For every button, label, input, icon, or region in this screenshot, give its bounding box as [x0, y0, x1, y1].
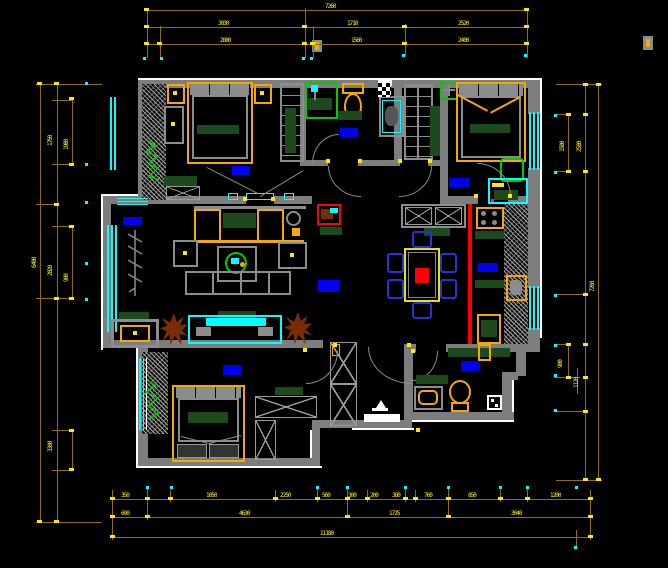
cyan-dot — [85, 163, 88, 166]
closet-clothes — [430, 106, 440, 156]
dim-line — [72, 226, 73, 298]
dim-text: 690 — [121, 511, 129, 517]
dim-text: 900 — [558, 360, 564, 368]
entry-bench-cushion — [164, 176, 197, 186]
bed1-blanket — [197, 125, 239, 134]
bed3-blanket — [188, 412, 228, 423]
cyan-dot — [526, 486, 529, 489]
cyan-dot — [554, 171, 557, 174]
outline-bedroom3-bottom — [138, 466, 322, 468]
wall-right-kitchen-lower — [528, 328, 540, 344]
sofa-seat-cushion — [223, 213, 256, 228]
bedroom1-door-panel — [284, 193, 294, 200]
dim-line — [112, 499, 590, 500]
cyan-dot — [554, 294, 557, 297]
cad-canvas[interactable]: 7260 3030 1710 2520 2880 1560 2400 350 1… — [0, 0, 668, 568]
bath1-mat — [338, 111, 362, 120]
dim-line — [568, 344, 569, 378]
bath2-sink — [418, 390, 438, 405]
wardrobe-shelf — [275, 387, 303, 395]
hinge-dot — [271, 197, 275, 201]
dim-tick — [302, 42, 307, 45]
dim-extension — [415, 490, 416, 502]
dim-tick — [566, 376, 571, 379]
fan-blade — [448, 84, 450, 96]
room-label-kitchen — [478, 263, 498, 272]
balcony-top-window — [117, 204, 148, 205]
hinge-dot — [428, 159, 432, 163]
dim-extension — [576, 530, 577, 546]
burner — [492, 211, 497, 216]
dim-text: 1500 — [560, 142, 566, 152]
dim-tick — [110, 515, 115, 518]
bay-window-line — [111, 225, 113, 332]
wardrobe-bedroom3-top — [255, 396, 317, 418]
dim-extension — [305, 8, 306, 58]
highlighted-wall-red — [468, 204, 472, 344]
tv-speaker — [196, 327, 211, 336]
burner — [492, 220, 497, 225]
bed1-headboard — [190, 84, 250, 95]
dim-extension — [405, 24, 406, 56]
dim-text: 1200 — [550, 493, 560, 499]
hinge-dot — [411, 349, 415, 353]
dim-tick — [525, 497, 530, 500]
cyan-dot — [302, 57, 305, 60]
dim-tick — [524, 25, 529, 28]
cyan-dot — [170, 486, 173, 489]
dim-extension — [275, 490, 276, 502]
dim-tick — [588, 515, 593, 518]
cyan-dot — [574, 546, 577, 549]
dim-text: 900 — [64, 274, 70, 282]
dim-tick — [157, 42, 162, 45]
dim-text: 6400 — [32, 258, 38, 268]
hinge-dot — [326, 159, 330, 163]
dim-line — [57, 84, 58, 522]
dim-tick — [302, 25, 307, 28]
dim-text: 4630 — [239, 511, 249, 517]
balcony-top-window — [117, 198, 148, 199]
dim-text: 300 — [348, 493, 356, 499]
dim-tick — [583, 83, 588, 86]
dim-tick — [583, 478, 588, 481]
basin-sink — [385, 106, 398, 126]
dim-tick — [524, 8, 529, 11]
burner — [481, 211, 486, 216]
dim-stub — [36, 84, 102, 85]
dim-tick — [144, 8, 149, 11]
cyan-dot — [310, 57, 313, 60]
balcony-top-window — [117, 201, 148, 202]
dim-text: 2580 — [577, 142, 583, 152]
dining-chair — [412, 302, 432, 319]
dim-text: 11180 — [320, 531, 333, 537]
dim-tick — [446, 497, 451, 500]
bedroom1-door-panel — [228, 193, 238, 200]
cyan-dot — [146, 486, 149, 489]
dim-text: 2020 — [48, 266, 54, 276]
dim-tick — [596, 478, 601, 481]
washing-machine-knob — [133, 331, 137, 335]
dining-chair — [412, 231, 432, 248]
dim-tick — [588, 497, 593, 500]
dim-tick — [145, 515, 150, 518]
cyan-dot — [524, 54, 527, 57]
door-swing-line — [260, 170, 303, 197]
axis-marker-flag — [646, 39, 650, 47]
dim-text: 7260 — [590, 282, 596, 292]
dim-stub — [36, 522, 102, 523]
bedroom3-window — [139, 358, 141, 430]
entry-label-block — [364, 414, 400, 422]
tv-screen — [206, 318, 266, 326]
dim-tick — [37, 520, 42, 523]
wall-right-top — [528, 80, 540, 114]
dim-tick — [583, 170, 588, 173]
dim-tick — [69, 97, 74, 100]
dim-tick — [144, 25, 149, 28]
room-label-bedroom1 — [232, 166, 250, 175]
plant-icon — [143, 138, 165, 182]
outline-corridor-bottom — [352, 428, 414, 430]
dim-extension — [448, 488, 449, 518]
hinge-dot — [416, 428, 420, 432]
dim-stub — [52, 100, 72, 101]
dim-tick — [69, 163, 74, 166]
wall-corridor-b — [358, 160, 400, 166]
kitchen-window — [537, 286, 539, 330]
dim-tick — [583, 343, 588, 346]
bay-window-line — [107, 225, 109, 332]
dining-chair — [387, 279, 404, 299]
entry-cabinet-decor2 — [330, 208, 338, 213]
bed2-headboard — [459, 84, 523, 96]
sectional-divider — [212, 271, 214, 295]
cyan-dot — [85, 82, 88, 85]
dim-text: 7260 — [325, 4, 335, 10]
cyan-dot — [499, 486, 502, 489]
dim-tick — [54, 520, 59, 523]
dim-tick — [54, 203, 59, 206]
dim-tick — [54, 82, 59, 85]
closet-divider — [417, 84, 419, 160]
toilet2-tank — [451, 402, 469, 412]
corridor-door-arc — [368, 347, 412, 384]
dim-tick — [402, 25, 407, 28]
dim-text: 3030 — [218, 21, 228, 27]
dim-text: 1760 — [48, 136, 54, 146]
dim-tick — [69, 297, 74, 300]
wall-step-vertical — [312, 422, 320, 466]
cyan-dot — [85, 298, 88, 301]
lamp-icon — [260, 91, 264, 95]
dim-tick — [583, 376, 588, 379]
entry-marker-bar — [372, 408, 388, 411]
dim-text: 200 — [370, 493, 378, 499]
hinge-dot — [358, 159, 362, 163]
hinge-dot — [333, 343, 337, 347]
dim-tick — [54, 297, 59, 300]
tv-speaker — [258, 327, 273, 336]
bedroom1-outer-window — [114, 97, 116, 170]
dim-text: 1710 — [347, 21, 357, 27]
floor-drain-dot — [495, 404, 498, 407]
dim-text: 1120 — [574, 378, 580, 388]
dim-text: 3040 — [511, 511, 521, 517]
bedroom2-window — [537, 112, 539, 170]
hinge-dot — [398, 159, 402, 163]
dim-tick — [69, 429, 74, 432]
sofa-armchair-right — [257, 209, 284, 242]
washer-stand — [378, 83, 391, 97]
hinge-dot — [508, 194, 512, 198]
dim-text: 1980 — [64, 140, 70, 150]
dim-extension — [527, 8, 528, 58]
room-label-living — [318, 280, 340, 292]
wall-bedroom2-bottom-a — [440, 196, 478, 204]
entry-marker-icon — [376, 400, 386, 408]
cyan-dot — [346, 486, 349, 489]
dining-centerpiece — [415, 268, 429, 283]
dim-line — [147, 27, 527, 28]
kitchen-window — [529, 286, 531, 330]
dim-tick — [345, 515, 350, 518]
dresser-knob — [171, 122, 175, 126]
kitchen-counter — [475, 280, 504, 288]
lamp-icon — [173, 91, 177, 95]
stove — [476, 207, 504, 229]
cyan-dot — [143, 57, 146, 60]
dim-text: 3300 — [48, 442, 54, 452]
dim-text: 2400 — [458, 38, 468, 44]
floor-drain — [487, 395, 502, 410]
dim-tick — [566, 343, 571, 346]
kitchen-window — [533, 286, 535, 330]
hatch-wall-kitchen — [504, 204, 528, 344]
hinge-dot — [243, 197, 247, 201]
cyan-dot — [316, 486, 319, 489]
cyan-dot — [554, 114, 557, 117]
dim-line — [112, 537, 590, 538]
entry-bench-cabinet — [166, 186, 200, 200]
cyan-dot — [554, 374, 557, 377]
kitchen-counter — [475, 231, 504, 239]
coffee-table-flower — [240, 262, 245, 267]
sectional-divider — [268, 271, 270, 295]
dim-tick — [413, 497, 418, 500]
room-label-bedroom3 — [223, 365, 241, 375]
side-table-lamp — [183, 251, 187, 255]
ceiling-light-icon — [286, 211, 301, 226]
cabinet-panel — [405, 207, 432, 225]
floor-drain-dot — [491, 399, 494, 402]
coffee-table-plant-leaf — [231, 258, 239, 264]
bed2-blanket — [470, 124, 510, 133]
corridor-door-arc — [399, 166, 432, 197]
dim-tick — [69, 225, 74, 228]
side-table-lamp — [290, 253, 294, 257]
tree-icon — [126, 230, 144, 296]
dining-chair — [440, 253, 457, 273]
dining-chair — [440, 279, 457, 299]
dim-text: 2880 — [220, 38, 230, 44]
dim-tick — [583, 113, 588, 116]
wardrobe-clothes — [285, 108, 296, 153]
cyan-dot — [575, 486, 578, 489]
plant-icon — [142, 378, 168, 424]
dim-line — [147, 44, 527, 45]
dim-tick — [583, 410, 588, 413]
dim-extension — [367, 490, 368, 502]
dim-line — [72, 98, 73, 166]
dim-tick — [110, 535, 115, 538]
dim-line — [40, 84, 41, 522]
sectional-sofa — [185, 271, 291, 295]
dim-tick — [168, 497, 173, 500]
dim-text: 2520 — [458, 21, 468, 27]
dim-extension — [500, 490, 501, 502]
bed3-headboard — [176, 387, 241, 398]
bed3-drawer — [209, 444, 239, 458]
dim-extension — [170, 490, 171, 502]
cyan-dot — [85, 262, 88, 265]
desk-dot — [491, 199, 494, 202]
dim-tick — [145, 497, 150, 500]
dim-tick — [524, 42, 529, 45]
dim-text: 380 — [392, 493, 400, 499]
dim-tick — [315, 497, 320, 500]
sofa-armchair-left — [194, 209, 221, 242]
shower-shelf — [308, 98, 332, 110]
sink-basin — [510, 280, 522, 295]
dim-text: 1725 — [389, 511, 399, 517]
wardrobe-bedroom3-side — [255, 420, 276, 460]
dim-text: 1050 — [206, 493, 216, 499]
dim-text: 760 — [424, 493, 432, 499]
dim-line — [568, 114, 569, 172]
shower-stem — [314, 92, 316, 100]
cyan-dot — [85, 201, 88, 204]
toilet2-bowl — [449, 380, 471, 404]
wall-bedroom2-left — [440, 88, 448, 196]
sectional-divider — [240, 271, 242, 295]
hinge-dot — [474, 194, 478, 198]
hinge-dot — [303, 348, 307, 352]
bed3-drawer — [177, 444, 207, 458]
dim-tick — [566, 170, 571, 173]
dim-tick — [310, 42, 315, 45]
dim-tick — [498, 497, 503, 500]
bedroom2-window — [533, 112, 535, 170]
wall-right-step2 — [502, 372, 512, 416]
dim-extension — [147, 8, 148, 58]
cyan-dot — [160, 57, 163, 60]
bay-window-line — [115, 225, 117, 332]
wall-bath2-bottom — [404, 412, 514, 420]
dim-line — [598, 84, 599, 480]
side-chair — [292, 228, 300, 236]
dim-tick — [403, 497, 408, 500]
kitchen-appliance-door — [481, 320, 497, 337]
cyan-dot — [404, 486, 407, 489]
wall-right-kitchen-upper — [528, 204, 540, 288]
shaft-lower — [330, 384, 357, 426]
burner — [481, 220, 486, 225]
dim-tick — [273, 497, 278, 500]
dim-tick — [583, 293, 588, 296]
dim-line — [72, 430, 73, 470]
bedroom2-window — [529, 112, 531, 170]
room-label-bathroom2 — [461, 361, 480, 371]
dim-text: 2250 — [280, 493, 290, 499]
dim-text: 1560 — [351, 38, 361, 44]
room-label-bedroom2 — [449, 178, 469, 187]
dim-line — [112, 517, 590, 518]
shower-head-icon — [311, 85, 318, 92]
dim-text: 850 — [468, 493, 476, 499]
bath2-mat — [416, 375, 448, 384]
cyan-dot — [402, 54, 405, 57]
dim-tick — [37, 82, 42, 85]
hinge-dot — [407, 343, 411, 347]
outline-right-upper — [540, 78, 542, 336]
entry-mat — [320, 227, 342, 235]
cyan-dot — [554, 344, 557, 347]
room-label-balcony — [123, 217, 142, 225]
dim-text: 560 — [322, 493, 330, 499]
dim-tick — [566, 113, 571, 116]
room-label-bathroom1 — [340, 128, 358, 137]
dim-text: 350 — [121, 493, 129, 499]
dim-tick — [596, 83, 601, 86]
cyan-dot — [554, 409, 557, 412]
dim-tick — [588, 535, 593, 538]
bath2-door-frame — [478, 344, 491, 361]
dim-tick — [69, 468, 74, 471]
dim-line — [585, 84, 586, 480]
cabinet-panel — [435, 207, 462, 225]
corridor-door-arc — [328, 166, 361, 197]
bedroom1-outer-window — [110, 97, 112, 170]
dining-chair — [387, 253, 404, 273]
dim-line — [147, 10, 527, 11]
dim-tick — [402, 42, 407, 45]
dim-tick — [110, 497, 115, 500]
outline-bath2-bottom — [404, 420, 514, 422]
dim-tick — [446, 515, 451, 518]
dim-tick — [144, 42, 149, 45]
cyan-dot — [447, 486, 450, 489]
